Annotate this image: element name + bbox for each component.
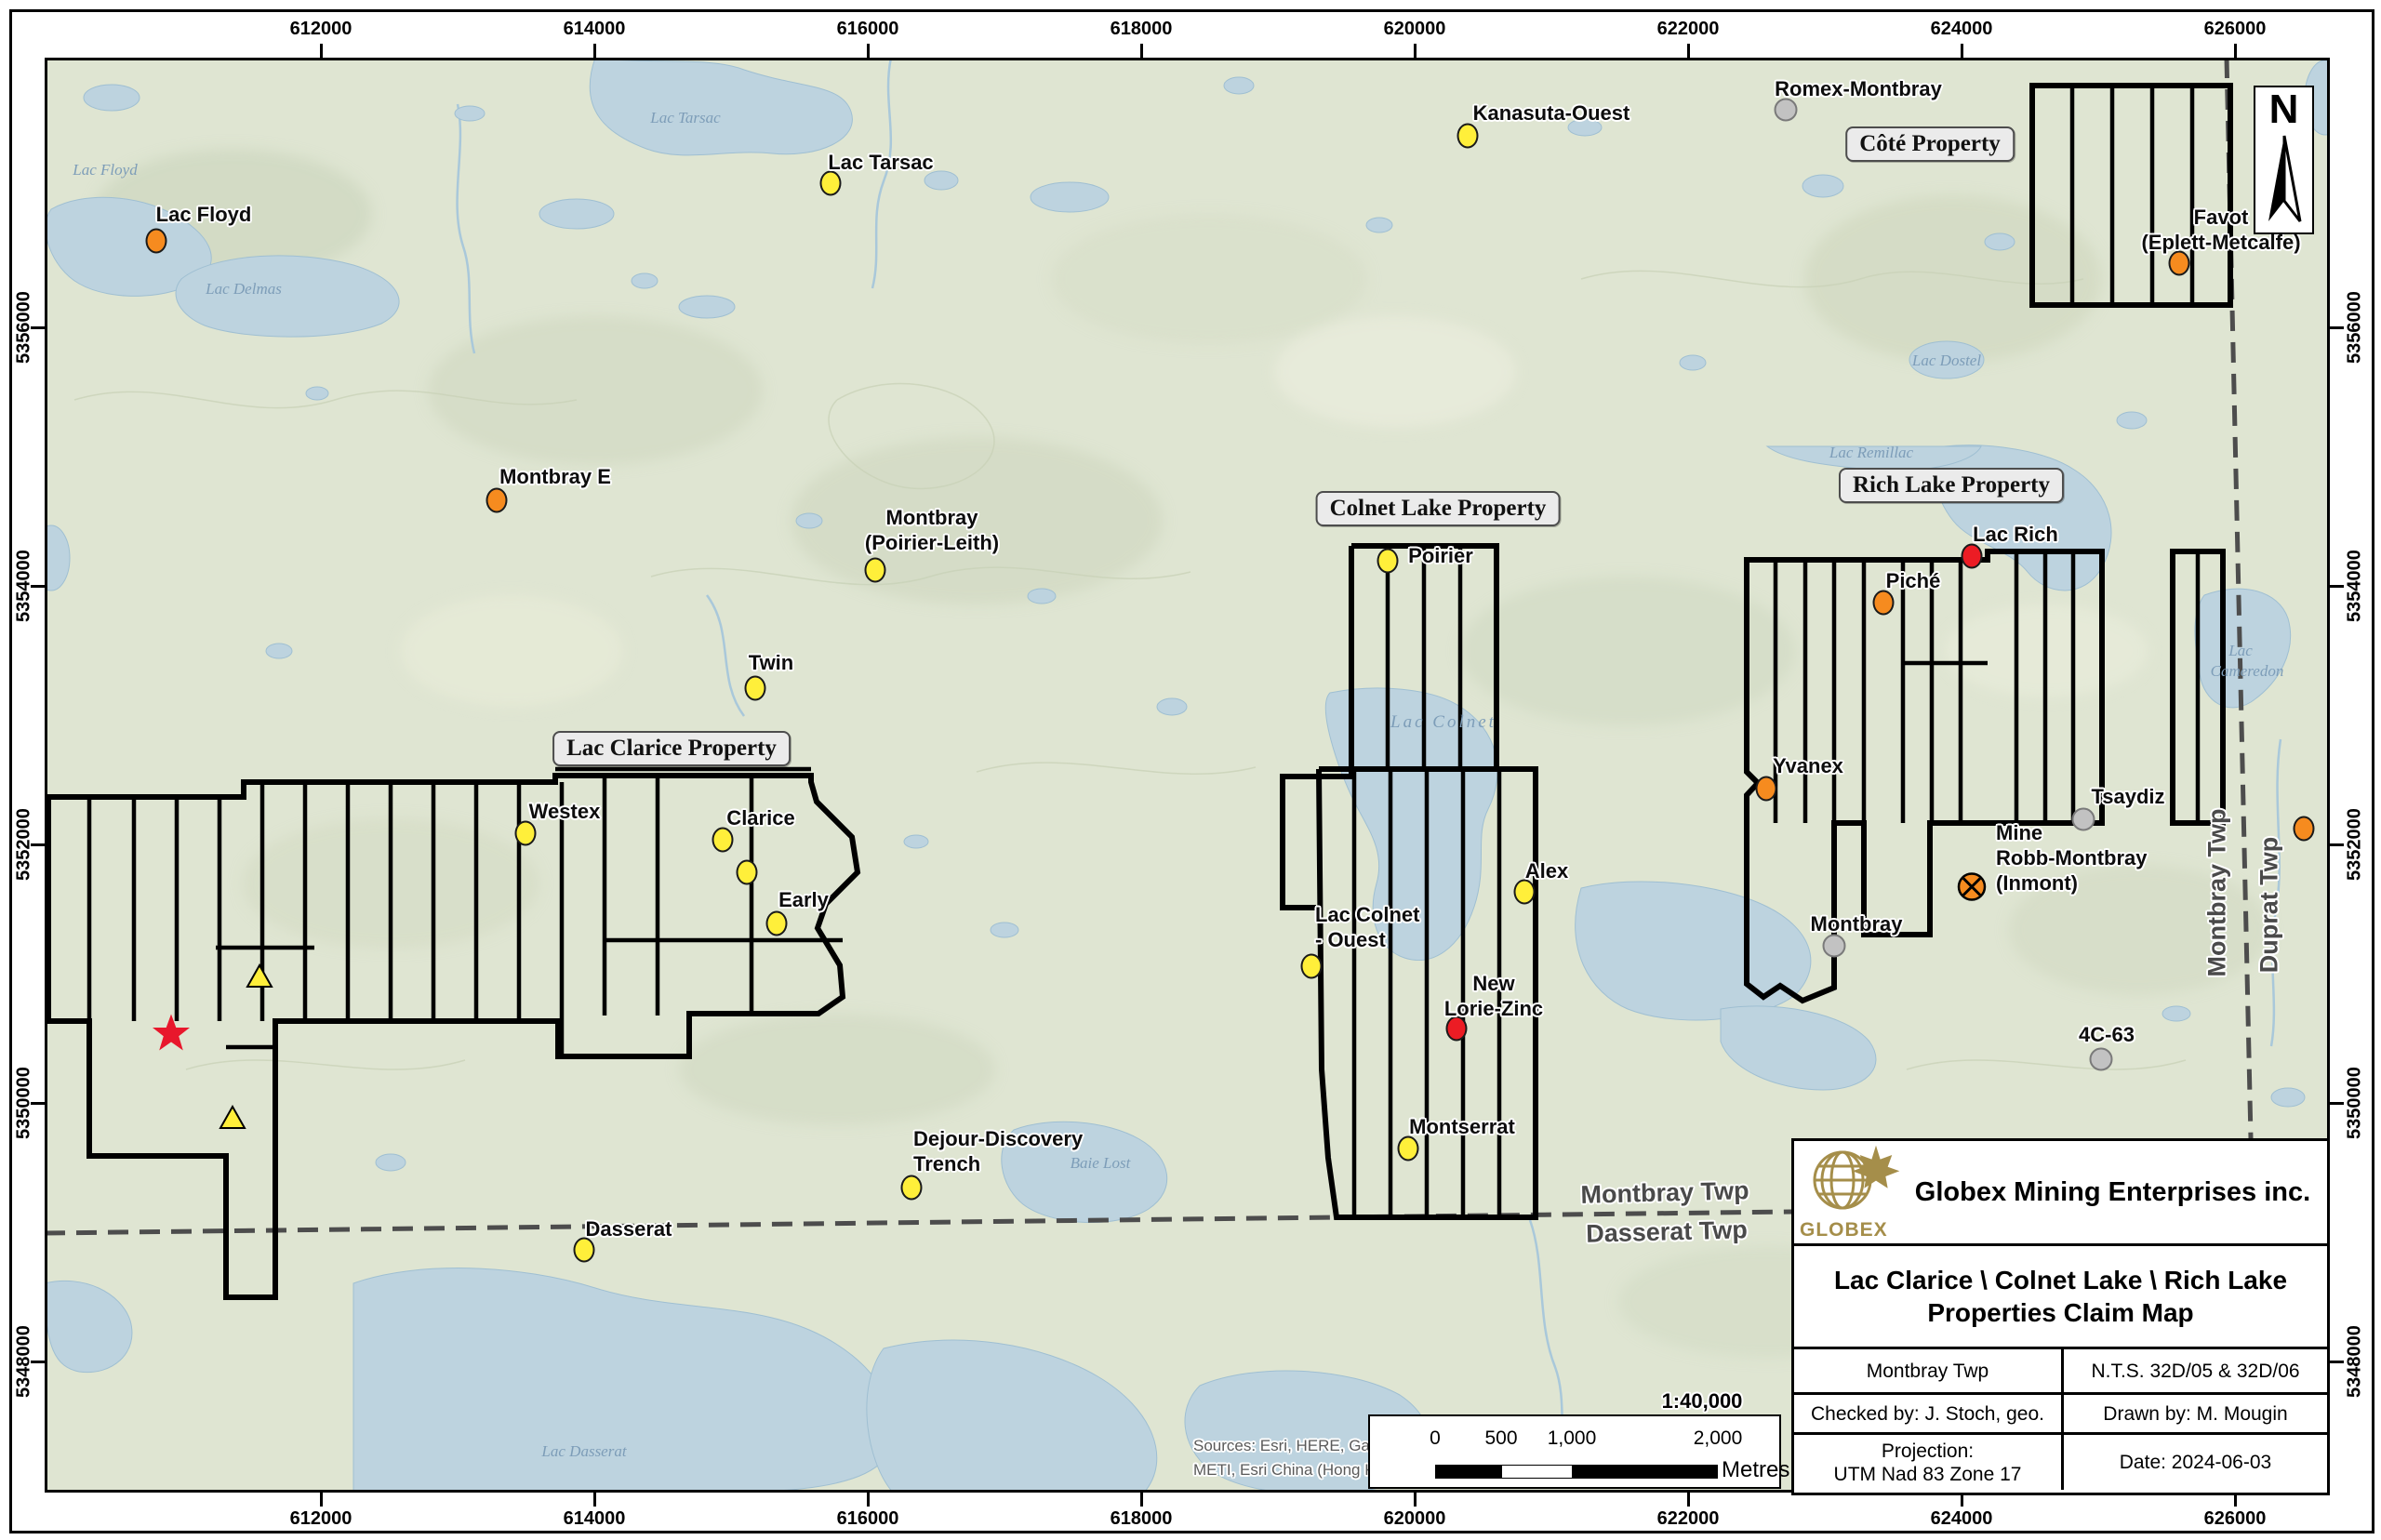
- y-axis-tick: [31, 1102, 45, 1105]
- marker-piche: [1873, 591, 1895, 616]
- x-axis-label: 624000: [1931, 1508, 1993, 1530]
- x-axis-label: 620000: [1384, 1508, 1446, 1530]
- y-axis-label: 5352000: [2345, 808, 2366, 881]
- globex-logo-text: GLOBEX: [1800, 1219, 1888, 1241]
- lake-name-label: Lac Dostel: [1912, 352, 1981, 370]
- yellow-deposit-icon: [820, 171, 842, 196]
- x-axis-tick: [1140, 44, 1143, 58]
- marker-label-line: Lorie-Zinc: [1444, 996, 1543, 1021]
- marker-label-line: Twin: [749, 650, 793, 675]
- marker-label-line: Montbray E: [499, 464, 611, 489]
- marker-label-line: Lac Floyd: [156, 202, 252, 227]
- yellow-deposit-icon: [1398, 1136, 1419, 1162]
- marker-label-mine-robb-montbray-inmont: MineRobb-Montbray(Inmont): [1996, 820, 2148, 896]
- x-axis-tick: [867, 1493, 870, 1507]
- projection-cell: Projection: UTM Nad 83 Zone 17: [1794, 1435, 2061, 1490]
- x-axis-tick: [1687, 1493, 1690, 1507]
- property-label-colnet-lake-property: Colnet Lake Property: [1316, 491, 1561, 526]
- x-axis-tick: [2234, 44, 2237, 58]
- y-axis-label: 5350000: [2345, 1067, 2366, 1139]
- marker-clarice-south: [737, 860, 758, 885]
- map-title-line1: Lac Clarice \ Colnet Lake \ Rich Lake: [1794, 1264, 2327, 1296]
- x-axis-label: 618000: [1111, 1508, 1173, 1530]
- globe-maple-leaf-icon: [1794, 1141, 1906, 1219]
- yellow-deposit-icon: [745, 676, 766, 701]
- lake-name-label: Lac Colnet: [1390, 712, 1496, 733]
- star-icon: [151, 1014, 192, 1053]
- north-label: N: [2255, 87, 2312, 132]
- scale-tick-label: 0: [1430, 1427, 1441, 1450]
- lake-name-label: Lac Remillac: [1829, 444, 1913, 462]
- orange-deposit-icon: [1873, 591, 1895, 616]
- scale-bar-segment: [1435, 1465, 1503, 1479]
- yellow-deposit-icon: [1301, 954, 1323, 979]
- scale-bar-segment: [1501, 1465, 1574, 1479]
- y-axis-tick: [2330, 843, 2344, 846]
- lake-name-label: Lac Delmas: [206, 280, 282, 299]
- yellow-deposit-icon: [737, 860, 758, 885]
- marker-label-line: New: [1444, 971, 1543, 996]
- y-axis-tick: [2330, 326, 2344, 329]
- y-axis-tick: [2330, 1102, 2344, 1105]
- projection-line1: Projection:: [1834, 1440, 2022, 1463]
- scale-ratio: 1:40,000: [1662, 1389, 1743, 1414]
- marker-kanasuta-ouest: [1457, 124, 1479, 149]
- scale-tick-label: 500: [1484, 1427, 1517, 1450]
- scale-unit: Metres: [1722, 1457, 1789, 1483]
- x-axis-tick: [1140, 1493, 1143, 1507]
- marker-early: [766, 911, 788, 936]
- marker-label-line: Yvanex: [1773, 753, 1843, 778]
- marker-label-line: Trench: [913, 1151, 1083, 1176]
- marker-label-4c-63: 4C-63: [2079, 1022, 2135, 1047]
- scale-bar-segment: [1572, 1465, 1718, 1479]
- property-label-rich-lake-property: Rich Lake Property: [1839, 468, 2064, 503]
- y-axis-tick: [2330, 585, 2344, 588]
- scale-bar: Metres 05001,0002,000: [1368, 1414, 1781, 1489]
- marker-label-line: Lac Colnet: [1315, 902, 1419, 927]
- marker-label-line: Lac Rich: [1973, 522, 2058, 547]
- marker-label-montbray-e: Montbray E: [499, 464, 611, 489]
- marker-label-line: Westex: [529, 799, 601, 824]
- x-axis-label: 622000: [1657, 19, 1720, 40]
- marker-label-line: Robb-Montbray: [1996, 845, 2148, 870]
- yellow-deposit-icon: [865, 558, 886, 583]
- x-axis-tick: [593, 1493, 596, 1507]
- marker-label-line: (Poirier-Leith): [865, 530, 999, 555]
- marker-label-line: Montbray: [1811, 911, 1903, 936]
- marker-showing-triangle-south: [219, 1105, 246, 1135]
- marker-mine-robb-montbray-inmont: [1956, 871, 1988, 908]
- marker-label-early: Early: [778, 887, 829, 912]
- marker-lac-tarsac: [820, 171, 842, 196]
- marker-label-line: Clarice: [726, 805, 794, 830]
- marker-label-line: (Inmont): [1996, 870, 2148, 896]
- lake-name-label: Lac Floyd: [73, 161, 137, 179]
- township-label-montbray-twp: Montbray Twp: [1580, 1176, 1749, 1210]
- x-axis-label: 618000: [1111, 19, 1173, 40]
- triangle-icon: [246, 963, 273, 989]
- x-axis-label: 626000: [2204, 19, 2267, 40]
- drawn-by-cell: Drawn by: M. Mougin: [2061, 1395, 2327, 1432]
- yellow-deposit-icon: [1514, 880, 1536, 905]
- y-axis-tick: [2330, 1361, 2344, 1363]
- marker-label-lac-colnet-ouest: Lac Colnet- Ouest: [1315, 902, 1419, 952]
- date-cell: Date: 2024-06-03: [2061, 1435, 2327, 1490]
- x-axis-label: 624000: [1931, 19, 1993, 40]
- yellow-deposit-icon: [1377, 549, 1399, 574]
- yellow-deposit-icon: [1457, 124, 1479, 149]
- title-block: GLOBEX Globex Mining Enterprises inc. La…: [1791, 1138, 2330, 1495]
- gray-deposit-icon: [2090, 1048, 2113, 1071]
- marker-yvanex: [1756, 777, 1777, 802]
- yellow-deposit-icon: [766, 911, 788, 936]
- township-label-dasserat-twp: Dasserat Twp: [1586, 1215, 1748, 1249]
- scale-tick-label: 1,000: [1548, 1427, 1597, 1450]
- marker-dejour-discovery-trench: [901, 1175, 923, 1201]
- marker-label-twin: Twin: [749, 650, 793, 675]
- marker-romex-montbray: [1775, 99, 1798, 122]
- x-axis-tick: [320, 1493, 323, 1507]
- property-label-c-t-property: Côté Property: [1845, 126, 2015, 162]
- marker-label-kanasuta-ouest: Kanasuta-Ouest: [1473, 100, 1630, 126]
- y-axis-label: 5348000: [2345, 1325, 2366, 1398]
- title-block-header: GLOBEX Globex Mining Enterprises inc.: [1794, 1141, 2327, 1243]
- x-axis-tick: [1687, 44, 1690, 58]
- marker-label-alex: Alex: [1525, 858, 1568, 883]
- checked-by-cell: Checked by: J. Stoch, geo.: [1794, 1395, 2061, 1432]
- marker-label-yvanex: Yvanex: [1773, 753, 1843, 778]
- north-arrow-icon: [2257, 132, 2311, 229]
- gray-deposit-icon: [1823, 935, 1846, 958]
- globex-logo: GLOBEX: [1794, 1141, 1906, 1243]
- marker-poirier: [1377, 549, 1399, 574]
- marker-label-montserrat: Montserrat: [1409, 1114, 1515, 1139]
- orange-deposit-icon: [2294, 816, 2315, 842]
- marker-label-line: - Ouest: [1315, 927, 1419, 952]
- marker-label-line: Early: [778, 887, 829, 912]
- marker-twin: [745, 676, 766, 701]
- map-title-line2: Properties Claim Map: [1794, 1296, 2327, 1329]
- x-axis-label: 622000: [1657, 1508, 1720, 1530]
- lake-name-label: Lac: [2228, 642, 2253, 660]
- marker-label-line: Piché: [1886, 568, 1941, 593]
- triangle-icon: [219, 1105, 246, 1130]
- marker-montbray: [1823, 935, 1846, 958]
- marker-dasserat: [574, 1238, 595, 1263]
- orange-deposit-icon: [486, 488, 508, 513]
- red-deposit-icon: [1962, 544, 1983, 569]
- map-title: Lac Clarice \ Colnet Lake \ Rich Lake Pr…: [1794, 1243, 2327, 1347]
- marker-label-line: Lac Tarsac: [828, 150, 933, 175]
- company-name: Globex Mining Enterprises inc.: [1906, 1177, 2327, 1208]
- y-axis-tick: [31, 843, 45, 846]
- nts-cell: N.T.S. 32D/05 & 32D/06: [2061, 1349, 2327, 1392]
- marker-lac-rich: [1962, 544, 1983, 569]
- lake-name-label: Lac Dasserat: [541, 1442, 626, 1461]
- marker-label-dejour-discovery-trench: Dejour-DiscoveryTrench: [913, 1126, 1083, 1176]
- y-axis-tick: [31, 585, 45, 588]
- marker-label-dasserat: Dasserat: [586, 1216, 672, 1241]
- marker-clarice: [712, 828, 734, 853]
- marker-label-line: Kanasuta-Ouest: [1473, 100, 1630, 126]
- mine-icon: [1956, 871, 1988, 903]
- x-axis-tick: [1961, 44, 1963, 58]
- marker-label-tsaydiz: Tsaydiz: [2091, 784, 2164, 809]
- marker-label-romex-montbray: Romex-Montbray: [1775, 76, 1942, 101]
- x-axis-label: 616000: [837, 1508, 899, 1530]
- marker-label-line: Romex-Montbray: [1775, 76, 1942, 101]
- x-axis-label: 620000: [1384, 19, 1446, 40]
- yellow-deposit-icon: [574, 1238, 595, 1263]
- x-axis-label: 626000: [2204, 1508, 2267, 1530]
- projection-line2: UTM Nad 83 Zone 17: [1834, 1463, 2022, 1486]
- lake-name-label: Cameredon: [2211, 662, 2284, 681]
- marker-lac-colnet-ouest: [1301, 954, 1323, 979]
- marker-label-line: 4C-63: [2079, 1022, 2135, 1047]
- marker-label-clarice: Clarice: [726, 805, 794, 830]
- x-axis-label: 614000: [564, 1508, 626, 1530]
- marker-label-piche: Piché: [1886, 568, 1941, 593]
- marker-label-line: Dasserat: [586, 1216, 672, 1241]
- lake-name-label: Lac Tarsac: [650, 109, 720, 127]
- x-axis-label: 616000: [837, 19, 899, 40]
- scale-tick-label: 2,000: [1694, 1427, 1743, 1450]
- x-axis-label: 612000: [290, 19, 352, 40]
- marker-label-new-lorie-zinc: NewLorie-Zinc: [1444, 971, 1543, 1021]
- y-axis-label: 5356000: [2345, 291, 2366, 364]
- claim-map-page: N Sources: Esri, HERE, Garmin, Int METI,…: [0, 0, 2381, 1540]
- orange-deposit-icon: [1756, 777, 1777, 802]
- marker-label-line: Poirier: [1408, 543, 1473, 568]
- x-axis-tick: [593, 44, 596, 58]
- x-axis-tick: [867, 44, 870, 58]
- marker-montbray-e: [486, 488, 508, 513]
- marker-showing-star: [151, 1014, 192, 1057]
- marker-4c-63: [2090, 1048, 2113, 1071]
- y-axis-label: 5354000: [2345, 550, 2366, 622]
- yellow-deposit-icon: [712, 828, 734, 853]
- marker-label-line: Montbray: [865, 505, 999, 530]
- marker-lac-floyd: [146, 229, 167, 254]
- yellow-deposit-icon: [901, 1175, 923, 1201]
- x-axis-label: 612000: [290, 1508, 352, 1530]
- marker-label-lac-rich: Lac Rich: [1973, 522, 2058, 547]
- marker-westex: [515, 821, 537, 846]
- y-axis-tick: [31, 326, 45, 329]
- x-axis-tick: [1414, 1493, 1417, 1507]
- x-axis-label: 614000: [564, 19, 626, 40]
- marker-label-lac-floyd: Lac Floyd: [156, 202, 252, 227]
- township-cell: Montbray Twp: [1794, 1349, 2061, 1392]
- marker-label-montbray-poirier-leith: Montbray(Poirier-Leith): [865, 505, 999, 555]
- marker-label-line: Tsaydiz: [2091, 784, 2164, 809]
- x-axis-tick: [1414, 44, 1417, 58]
- marker-label-poirier: Poirier: [1408, 543, 1473, 568]
- township-label-montbray-twp: Montbray Twp: [2203, 809, 2232, 977]
- x-axis-tick: [320, 44, 323, 58]
- north-arrow: N: [2254, 86, 2314, 234]
- marker-label-montbray: Montbray: [1811, 911, 1903, 936]
- marker-montbray-poirier-leith: [865, 558, 886, 583]
- marker-showing-triangle-north: [246, 963, 273, 993]
- y-axis-tick: [31, 1361, 45, 1363]
- township-label-duprat-twp: Duprat Twp: [2255, 837, 2284, 973]
- marker-alex: [1514, 880, 1536, 905]
- yellow-deposit-icon: [515, 821, 537, 846]
- marker-label-line: Montserrat: [1409, 1114, 1515, 1139]
- marker-label-line: Mine: [1996, 820, 2148, 845]
- marker-label-lac-tarsac: Lac Tarsac: [828, 150, 933, 175]
- marker-label-line: Alex: [1525, 858, 1568, 883]
- marker-label-line: Dejour-Discovery: [913, 1126, 1083, 1151]
- marker-montserrat: [1398, 1136, 1419, 1162]
- gray-deposit-icon: [1775, 99, 1798, 122]
- property-label-lac-clarice-property: Lac Clarice Property: [552, 731, 791, 766]
- marker-label-westex: Westex: [529, 799, 601, 824]
- marker-unnamed-east: [2294, 816, 2315, 842]
- orange-deposit-icon: [146, 229, 167, 254]
